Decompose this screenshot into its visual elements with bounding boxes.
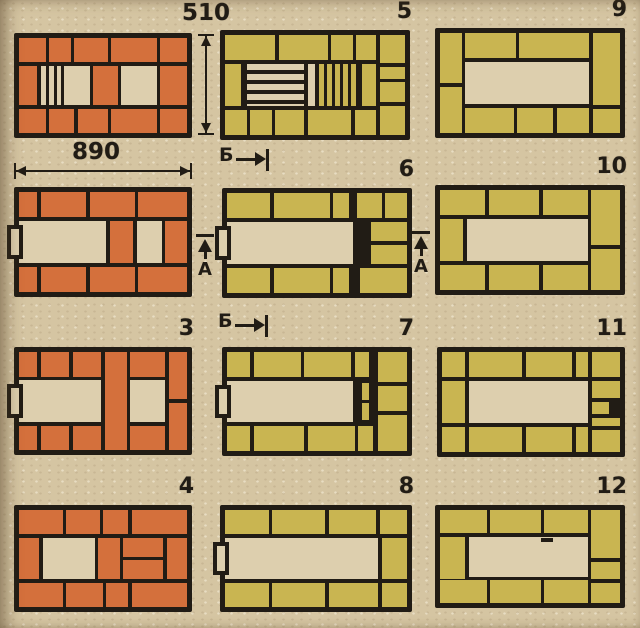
brick: [371, 222, 407, 241]
brick: [543, 190, 588, 215]
course-plan-4: 4: [14, 505, 192, 612]
brick: [592, 430, 620, 452]
brick: [19, 538, 39, 579]
brick: [103, 510, 128, 534]
course-number: 10: [596, 156, 627, 178]
divider-line: [541, 538, 554, 542]
brick: [380, 510, 407, 534]
brick: [362, 383, 369, 400]
brick: [440, 33, 462, 83]
brick: [440, 219, 463, 261]
brick: [138, 267, 187, 292]
brick: [329, 583, 378, 607]
up-arrow-icon: [198, 239, 212, 252]
brick: [19, 267, 37, 292]
brick: [576, 352, 588, 377]
brick: [465, 33, 515, 58]
grate-hatch: [319, 64, 359, 106]
brick: [19, 510, 63, 534]
brick: [592, 381, 620, 398]
brick: [308, 110, 351, 135]
brick: [132, 510, 187, 534]
brick: [544, 510, 587, 533]
brick: [442, 352, 465, 377]
brick: [227, 426, 250, 451]
brick: [490, 510, 540, 533]
brick: [275, 110, 304, 135]
brick: [593, 109, 620, 133]
brick: [465, 108, 514, 133]
brick: [442, 381, 465, 423]
brick: [333, 193, 349, 218]
brick: [123, 538, 163, 556]
divider-line: [357, 381, 361, 423]
brick: [19, 352, 37, 377]
section-cut-arrow-icon: [235, 315, 269, 337]
brick: [380, 106, 405, 135]
brick: [440, 537, 465, 579]
void-opening: [225, 538, 378, 579]
door-frame: [215, 226, 231, 260]
brick: [490, 580, 540, 603]
dimension-890-label: 890: [72, 141, 120, 164]
brick: [41, 267, 86, 292]
brick: [380, 35, 405, 63]
brick: [378, 415, 407, 451]
dimension-510-label: 510: [182, 2, 230, 25]
void-opening: [308, 64, 315, 106]
brick: [19, 109, 46, 133]
arrow-shaft-icon: [204, 252, 207, 259]
brick: [66, 510, 100, 534]
brick: [333, 268, 349, 293]
brick: [90, 192, 135, 217]
brick: [308, 426, 355, 451]
brick: [111, 38, 156, 62]
brick: [279, 35, 328, 60]
door-frame: [7, 225, 23, 259]
brick: [592, 402, 610, 414]
brick: [225, 110, 247, 135]
brick: [19, 38, 46, 62]
course-plan-3: 3: [14, 347, 192, 455]
void-opening: [469, 381, 588, 423]
course-plan-5: 5: [220, 30, 410, 140]
brick: [329, 510, 376, 534]
brick: [66, 583, 103, 607]
course-plan-12: 12: [435, 505, 625, 608]
void-opening: [467, 219, 588, 261]
brick: [440, 190, 485, 215]
brick: [138, 192, 187, 217]
section-label-b: Б: [219, 146, 233, 165]
brick: [254, 426, 304, 451]
course-plan-11: 11: [437, 347, 625, 457]
brick: [360, 268, 407, 293]
section-tick-icon: [196, 234, 214, 237]
brick: [544, 580, 587, 603]
brick: [160, 109, 187, 133]
course-plan-10: 10: [435, 185, 625, 295]
section-marker-a-right: А: [409, 231, 433, 276]
brick: [110, 221, 134, 263]
brick: [440, 580, 487, 603]
brick: [123, 560, 163, 578]
section-label-a: А: [414, 258, 428, 276]
brick: [519, 33, 589, 58]
course-number: 11: [596, 318, 627, 340]
brick: [225, 35, 275, 60]
brick: [227, 352, 250, 377]
brick: [380, 82, 405, 102]
brick: [225, 510, 269, 534]
brick: [49, 109, 74, 133]
brick: [593, 33, 620, 105]
course-plan-1: [14, 33, 192, 138]
brick: [543, 265, 588, 290]
section-marker-b-top: Б: [219, 146, 270, 171]
brick: [160, 38, 187, 62]
brick: [489, 265, 539, 290]
void-opening: [465, 62, 589, 104]
brick: [442, 427, 465, 452]
brick: [357, 193, 382, 218]
course-number: 6: [399, 159, 414, 181]
brick: [489, 190, 539, 215]
void-opening: [227, 222, 353, 264]
door-frame: [215, 385, 231, 419]
brick: [98, 538, 120, 579]
course-plan-7: 7: [222, 347, 412, 456]
brick: [557, 108, 589, 133]
void-opening: [137, 221, 162, 263]
brick: [591, 562, 620, 579]
course-number: 8: [399, 476, 414, 498]
brick: [591, 190, 620, 245]
void-opening: [43, 538, 95, 579]
brick: [526, 427, 572, 452]
brick: [378, 352, 407, 382]
brick: [105, 352, 127, 450]
brick: [130, 352, 165, 377]
brick: [73, 352, 102, 377]
divider-line: [371, 381, 375, 423]
up-arrow-icon: [414, 236, 428, 249]
brick: [19, 426, 37, 451]
section-marker-a-left: А: [193, 234, 217, 279]
void-opening: [469, 537, 588, 577]
brick: [19, 192, 37, 217]
section-marker-b-bottom: Б: [218, 312, 269, 337]
brick: [225, 64, 241, 106]
door-frame: [213, 542, 229, 575]
course-plan-9: 9: [435, 28, 625, 138]
section-label-b: Б: [218, 312, 232, 331]
section-cut-arrow-icon: [236, 149, 270, 171]
void-opening: [130, 380, 165, 421]
brick: [73, 426, 102, 451]
brick: [591, 583, 620, 603]
course-plan-2: [14, 187, 192, 297]
brick: [19, 66, 37, 106]
course-plan-8: 8: [220, 505, 412, 612]
brick: [274, 268, 330, 293]
brick: [19, 583, 63, 607]
brick: [130, 426, 165, 451]
brick: [371, 245, 407, 264]
void-opening: [19, 380, 101, 421]
brick: [380, 67, 405, 79]
brick: [576, 427, 588, 452]
coil-element: [247, 64, 305, 106]
brick: [169, 352, 187, 399]
brick: [469, 427, 522, 452]
brick: [331, 35, 353, 60]
brick: [227, 268, 270, 293]
course-number: 7: [399, 318, 414, 340]
divider-line: [364, 222, 368, 264]
brick: [382, 583, 407, 607]
brick: [378, 386, 407, 412]
dimension-890-arrow-icon: [14, 162, 192, 180]
door-frame: [7, 384, 23, 417]
section-label-a: А: [198, 261, 212, 279]
brick: [254, 352, 301, 377]
void-opening: [64, 66, 89, 106]
brick: [93, 66, 118, 106]
section-tick-icon: [412, 231, 430, 234]
brick: [382, 538, 407, 579]
course-number: 9: [612, 0, 627, 21]
arrow-shaft-icon: [420, 249, 423, 256]
brick: [74, 38, 108, 62]
brick: [225, 583, 269, 607]
brick: [111, 109, 156, 133]
brick: [356, 35, 376, 60]
stove-brickwork-course-diagram: 3456789101112 510 890 Б Б А А: [0, 0, 640, 628]
course-number: 3: [179, 318, 194, 340]
brick: [169, 403, 187, 450]
grate-hatch: [41, 66, 61, 106]
brick: [90, 267, 135, 292]
brick: [362, 64, 376, 106]
brick: [49, 38, 71, 62]
brick: [106, 583, 128, 607]
brick: [362, 403, 369, 420]
brick: [355, 352, 369, 377]
brick: [440, 265, 485, 290]
brick: [526, 352, 572, 377]
brick: [440, 87, 462, 133]
course-number: 5: [397, 1, 412, 23]
brick: [132, 583, 187, 607]
brick: [469, 352, 522, 377]
brick: [160, 66, 187, 106]
brick: [274, 193, 330, 218]
brick: [592, 352, 620, 377]
dimension-510-arrow-icon: [197, 34, 215, 135]
course-plan-6: 6: [222, 188, 412, 298]
brick: [41, 192, 86, 217]
brick: [250, 110, 272, 135]
brick: [272, 583, 325, 607]
brick: [304, 352, 351, 377]
brick: [591, 510, 620, 558]
brick: [272, 510, 325, 534]
brick: [41, 352, 70, 377]
brick: [41, 426, 70, 451]
course-number: 12: [596, 476, 627, 498]
brick: [358, 426, 372, 451]
brick: [355, 110, 377, 135]
brick: [592, 418, 620, 426]
brick: [167, 538, 187, 579]
void-opening: [19, 221, 106, 263]
void-opening: [227, 381, 353, 423]
brick: [227, 193, 270, 218]
brick: [591, 249, 620, 290]
brick: [385, 193, 407, 218]
divider-line: [357, 222, 361, 264]
course-number: 4: [179, 476, 194, 498]
brick: [165, 221, 187, 263]
brick: [517, 108, 553, 133]
brick: [78, 109, 108, 133]
brick: [440, 510, 487, 533]
void-opening: [121, 66, 156, 106]
